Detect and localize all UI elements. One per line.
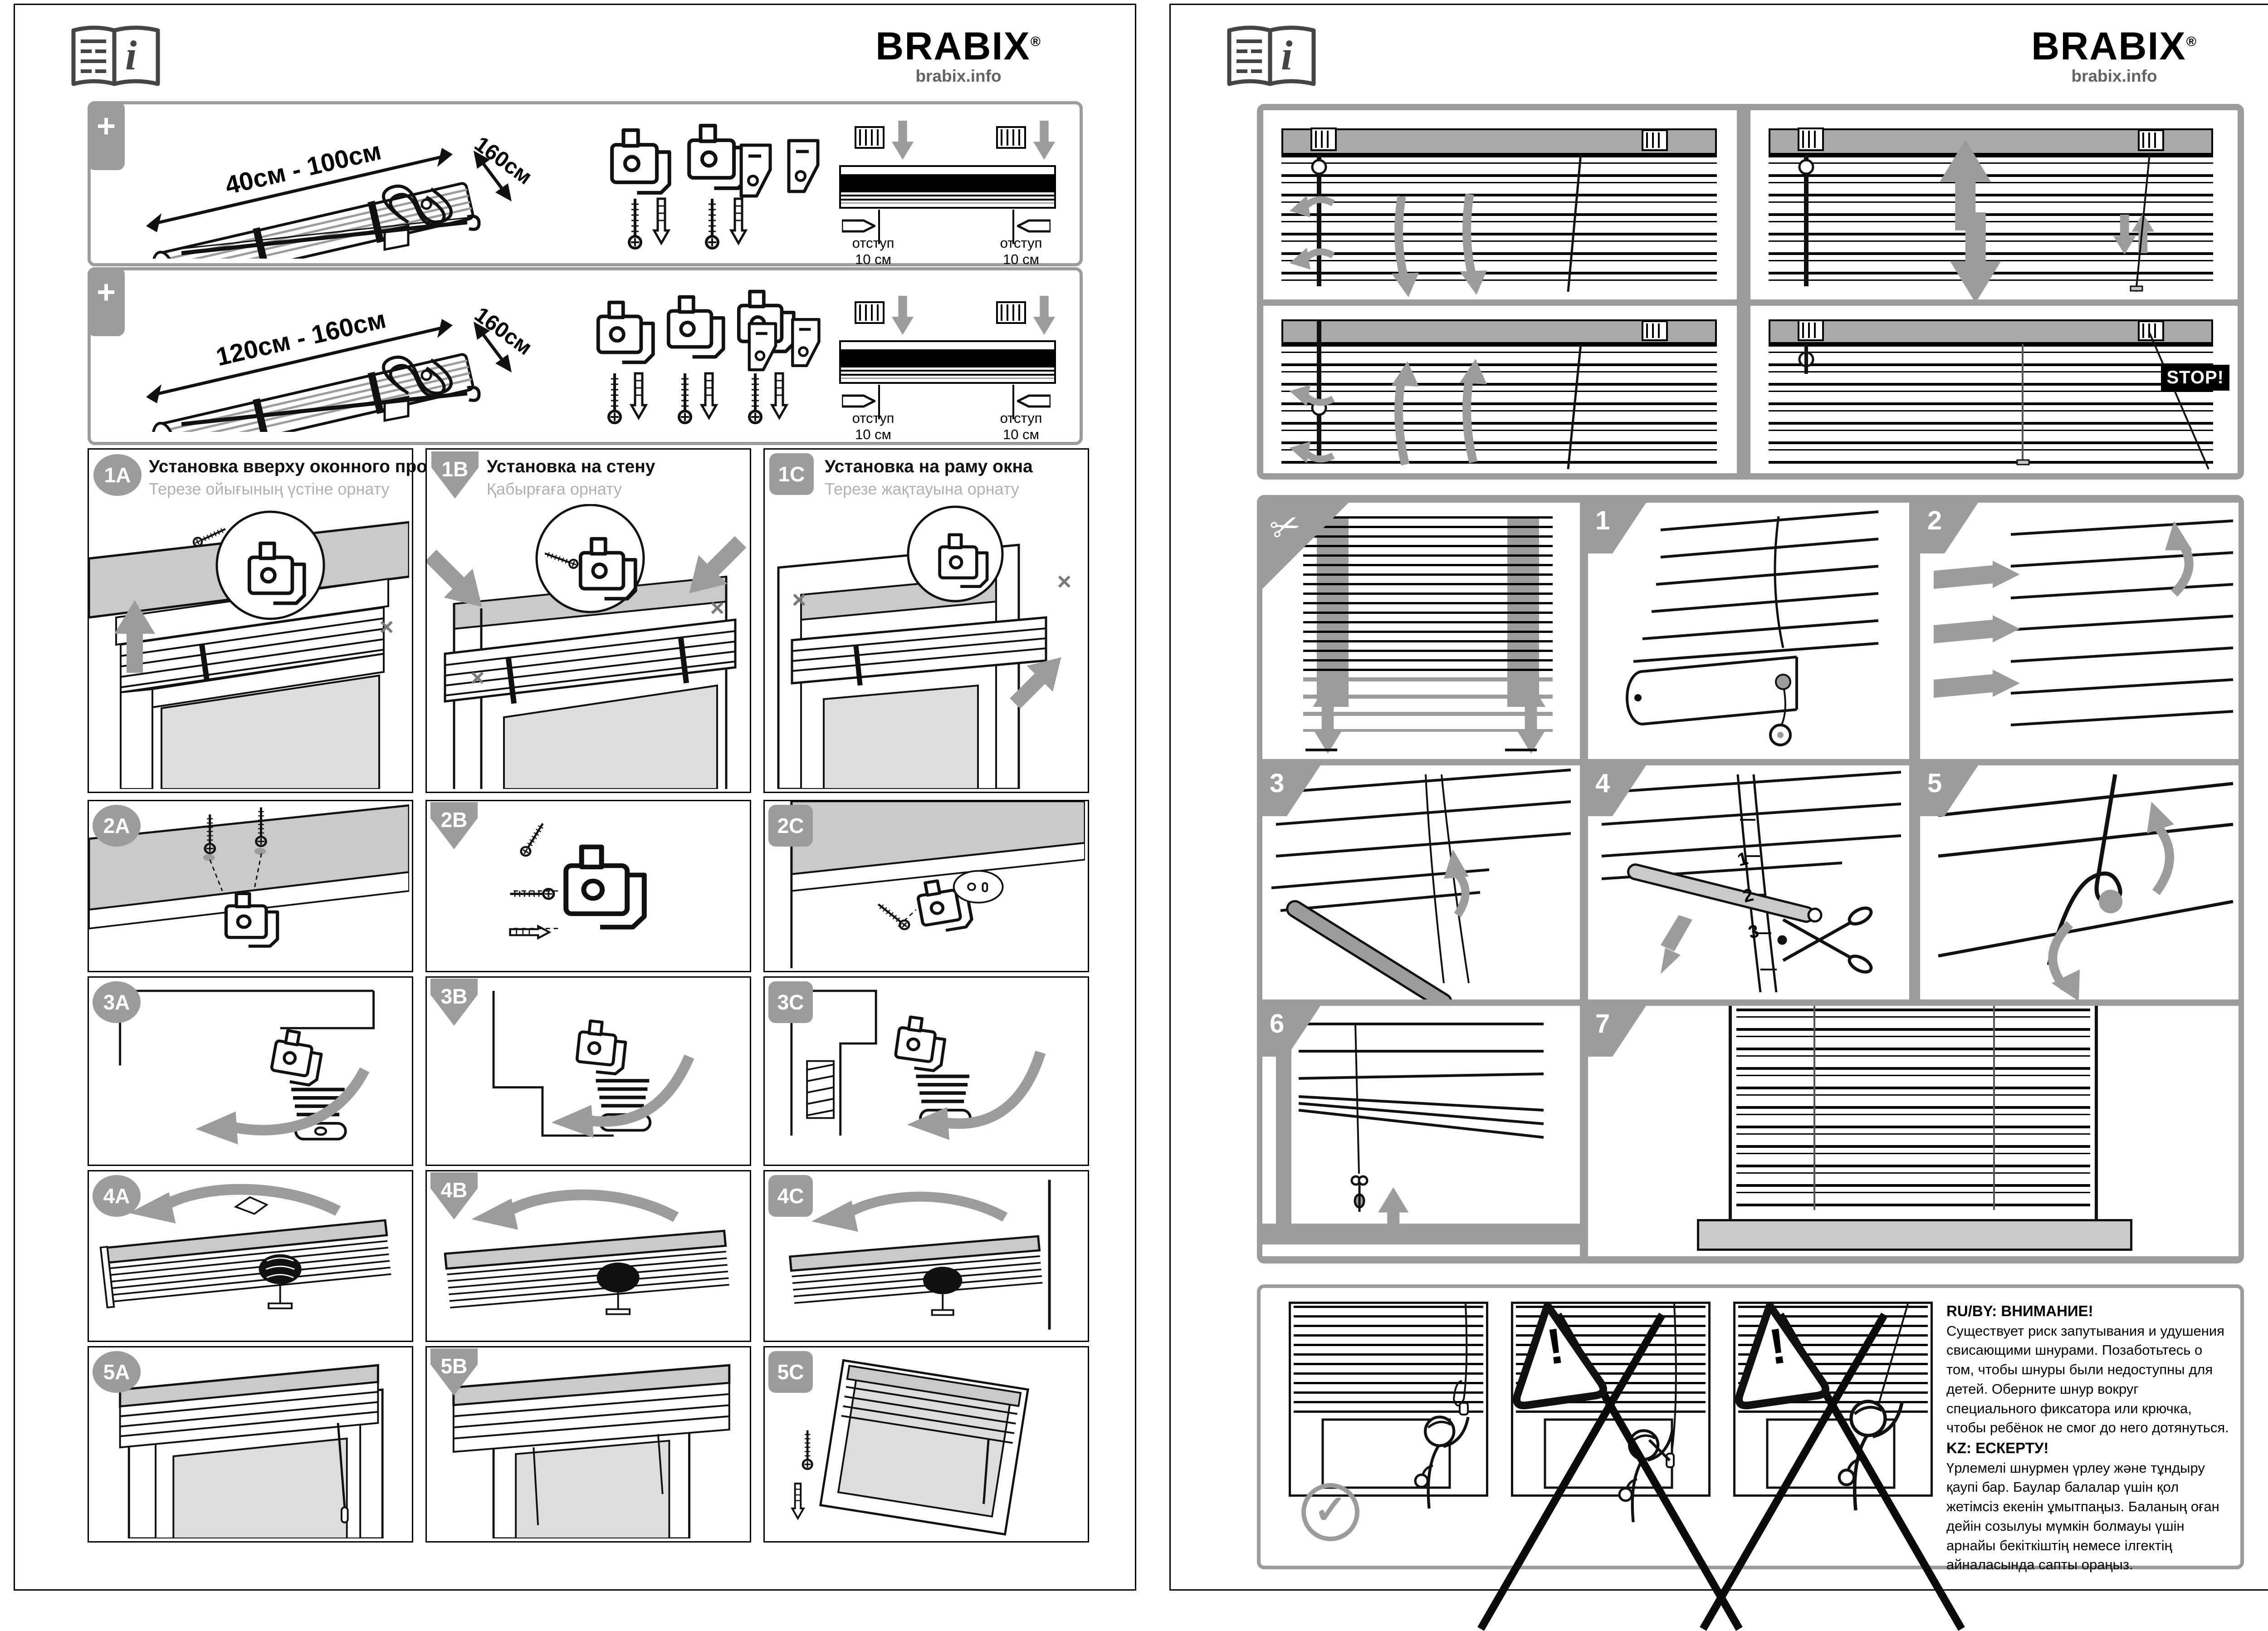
step-4-art [1588,765,1909,999]
usage-cord-stop: STOP! [1750,306,2238,473]
step-3b: 3B [425,976,751,1166]
badge-2a: 2A [93,805,141,847]
shorten-step-2: 2 [1920,503,2239,759]
badge-1b: 1B [431,451,479,499]
section-1c-subtitle: Терезе жақтауына орнату [825,480,1019,499]
step-2b-illustration [427,801,747,968]
brand-logo: BRABIX® brabix.info [2001,27,2228,86]
check-icon: ✓ [1314,1486,1347,1533]
step-5-art [1920,765,2239,999]
warning-ru-title: RU/BY: ВНИМАНИЕ! [1946,1301,2232,1322]
page-right: i BRABIX® brabix.info [1169,4,2268,1591]
offset-diagram: отступ10 см отступ10 см [835,116,1061,252]
offset-label-right: отступ10 см [992,410,1051,442]
clips-illustration [730,122,830,240]
warning-ru-body: Существует риск запутывания и удушения с… [1946,1323,2229,1436]
warning-window-bad-2: ! [1733,1302,1933,1497]
usage-tilt-open [1263,306,1737,473]
shorten-step-3: 3 [1262,765,1580,999]
step-7-badge: 7 [1588,1006,1646,1057]
usage-tilt-close [1263,110,1737,299]
offset-diagram: отступ10 см отступ10 см [835,291,1061,427]
step-3-art [1262,765,1580,999]
step-2-art [1920,503,2239,759]
info-i-glyph: i [125,31,137,79]
section-1c: 1C Установка на раму окна Терезе жақтауы… [763,448,1089,793]
info-i-glyph: i [1281,31,1293,79]
kit-contents-small: + 40см - [88,101,1083,266]
blinds-kit-illustration [118,109,599,259]
badge-2c: 2C [768,805,813,847]
step-1-art [1588,503,1909,759]
step-4a: 4A [88,1170,413,1342]
shorten-step-7: 7 [1588,1006,2239,1256]
badge-5a: 5A [93,1351,141,1393]
usage-raise-lower-arrows [1750,110,2238,299]
shorten-step-5: 5 [1920,765,2239,999]
badge-4a: 4A [93,1175,141,1217]
step-5b: 5B [425,1346,751,1543]
section-1a-title: Установка вверху оконного проема [149,457,459,477]
cross-icon: × [1057,568,1071,596]
warning-text: RU/BY: ВНИМАНИЕ! Существует риск запутыв… [1946,1301,2232,1575]
info-booklet-icon: i [1223,23,1320,91]
step-5a: 5A [88,1346,413,1543]
warning-kz-title: KZ: ЕСКЕРТУ! [1946,1438,2232,1459]
step-5c: 5C [763,1346,1089,1543]
scene-frame-mount [765,504,1085,789]
usage-tilt-open-arrows [1263,306,1737,473]
info-booklet-icon: i [67,23,165,91]
badge-3a: 3A [93,981,141,1023]
step-4b-illustration [427,1171,747,1338]
warning-triangle-icon: ! [1719,1290,1838,1417]
good-cord-art [1291,1304,1481,1490]
scissors-icon: ✂ [1264,503,1306,552]
warning-window-good [1289,1302,1488,1497]
usage-tilt-close-arrows [1263,110,1737,299]
badge-5c: 5C [768,1351,813,1393]
cross-icon: × [470,664,485,692]
shorten-step-4: 4 1 2 3 [1588,765,1909,999]
step-3c: 3C [763,976,1089,1166]
shorten-step-6: 6 [1262,1006,1580,1256]
cross-icon: × [710,594,724,622]
step-3b-illustration [427,978,747,1162]
step-3a: 3A [88,976,413,1166]
step-5b-illustration [427,1347,747,1538]
step-2c: 2C [763,800,1089,972]
kit-contents-large: + 120см - 160см [88,267,1083,445]
shorten-box: ✂ 1 [1257,495,2244,1264]
offset-label-left: отступ10 см [844,235,903,267]
warning-box: ✓ ! [1257,1284,2244,1569]
step-4c: 4C [763,1170,1089,1342]
warning-kz-body: Үрлемелі шнурмен үрлеу және тұндыру қауп… [1946,1460,2219,1573]
brand-logo: BRABIX® brabix.info [845,27,1072,86]
section-1c-title: Установка на раму окна [825,457,1033,477]
cross-icon: × [379,613,394,641]
shorten-step-1: 1 [1588,503,1909,759]
shorten-overview: ✂ [1262,503,1580,759]
scene-ceiling-mount [89,504,409,789]
badge-1a: 1A [93,454,142,496]
page-left: i BRABIX® brabix.info + [14,4,1136,1591]
offset-label-left: отступ10 см [844,410,903,442]
check-circle: ✓ [1301,1483,1359,1541]
step-2b: 2B [425,800,751,972]
step-6-art [1262,1006,1580,1256]
section-1b-title: Установка на стену [487,457,655,477]
clips-illustration [739,298,830,416]
section-1b: 1B Установка на стену Қабырғаға орнату ×… [425,448,751,793]
cross-icon: × [792,586,807,614]
step-2a: 2A [88,800,413,972]
usage-box: STOP! [1257,104,2244,480]
brand-site: brabix.info [2001,67,2228,86]
brand-reg-mark: ® [2186,34,2197,49]
brand-name: BRABIX [875,24,1031,68]
section-1a-subtitle: Терезе ойығының үстіне орнату [149,480,389,499]
blinds-kit-illustration [118,278,599,432]
stop-badge: STOP! [2161,365,2229,391]
badge-3c: 3C [768,981,813,1023]
offset-label-right: отступ10 см [992,235,1051,267]
badge-4c: 4C [768,1175,813,1217]
section-1a: 1A Установка вверху оконного проема Тере… [88,448,413,793]
brand-site: brabix.info [845,67,1072,86]
warning-window-bad-1: ! [1511,1302,1711,1497]
section-1b-subtitle: Қабырғаға орнату [487,480,622,499]
badge-1c: 1C [769,453,814,495]
step-4b: 4B [425,1170,751,1342]
scene-wall-mount [427,504,747,789]
brand-reg-mark: ® [1031,34,1041,49]
warning-triangle-icon: ! [1497,1290,1616,1417]
brand-name: BRABIX [2031,24,2186,68]
usage-raise-lower [1750,110,2238,299]
